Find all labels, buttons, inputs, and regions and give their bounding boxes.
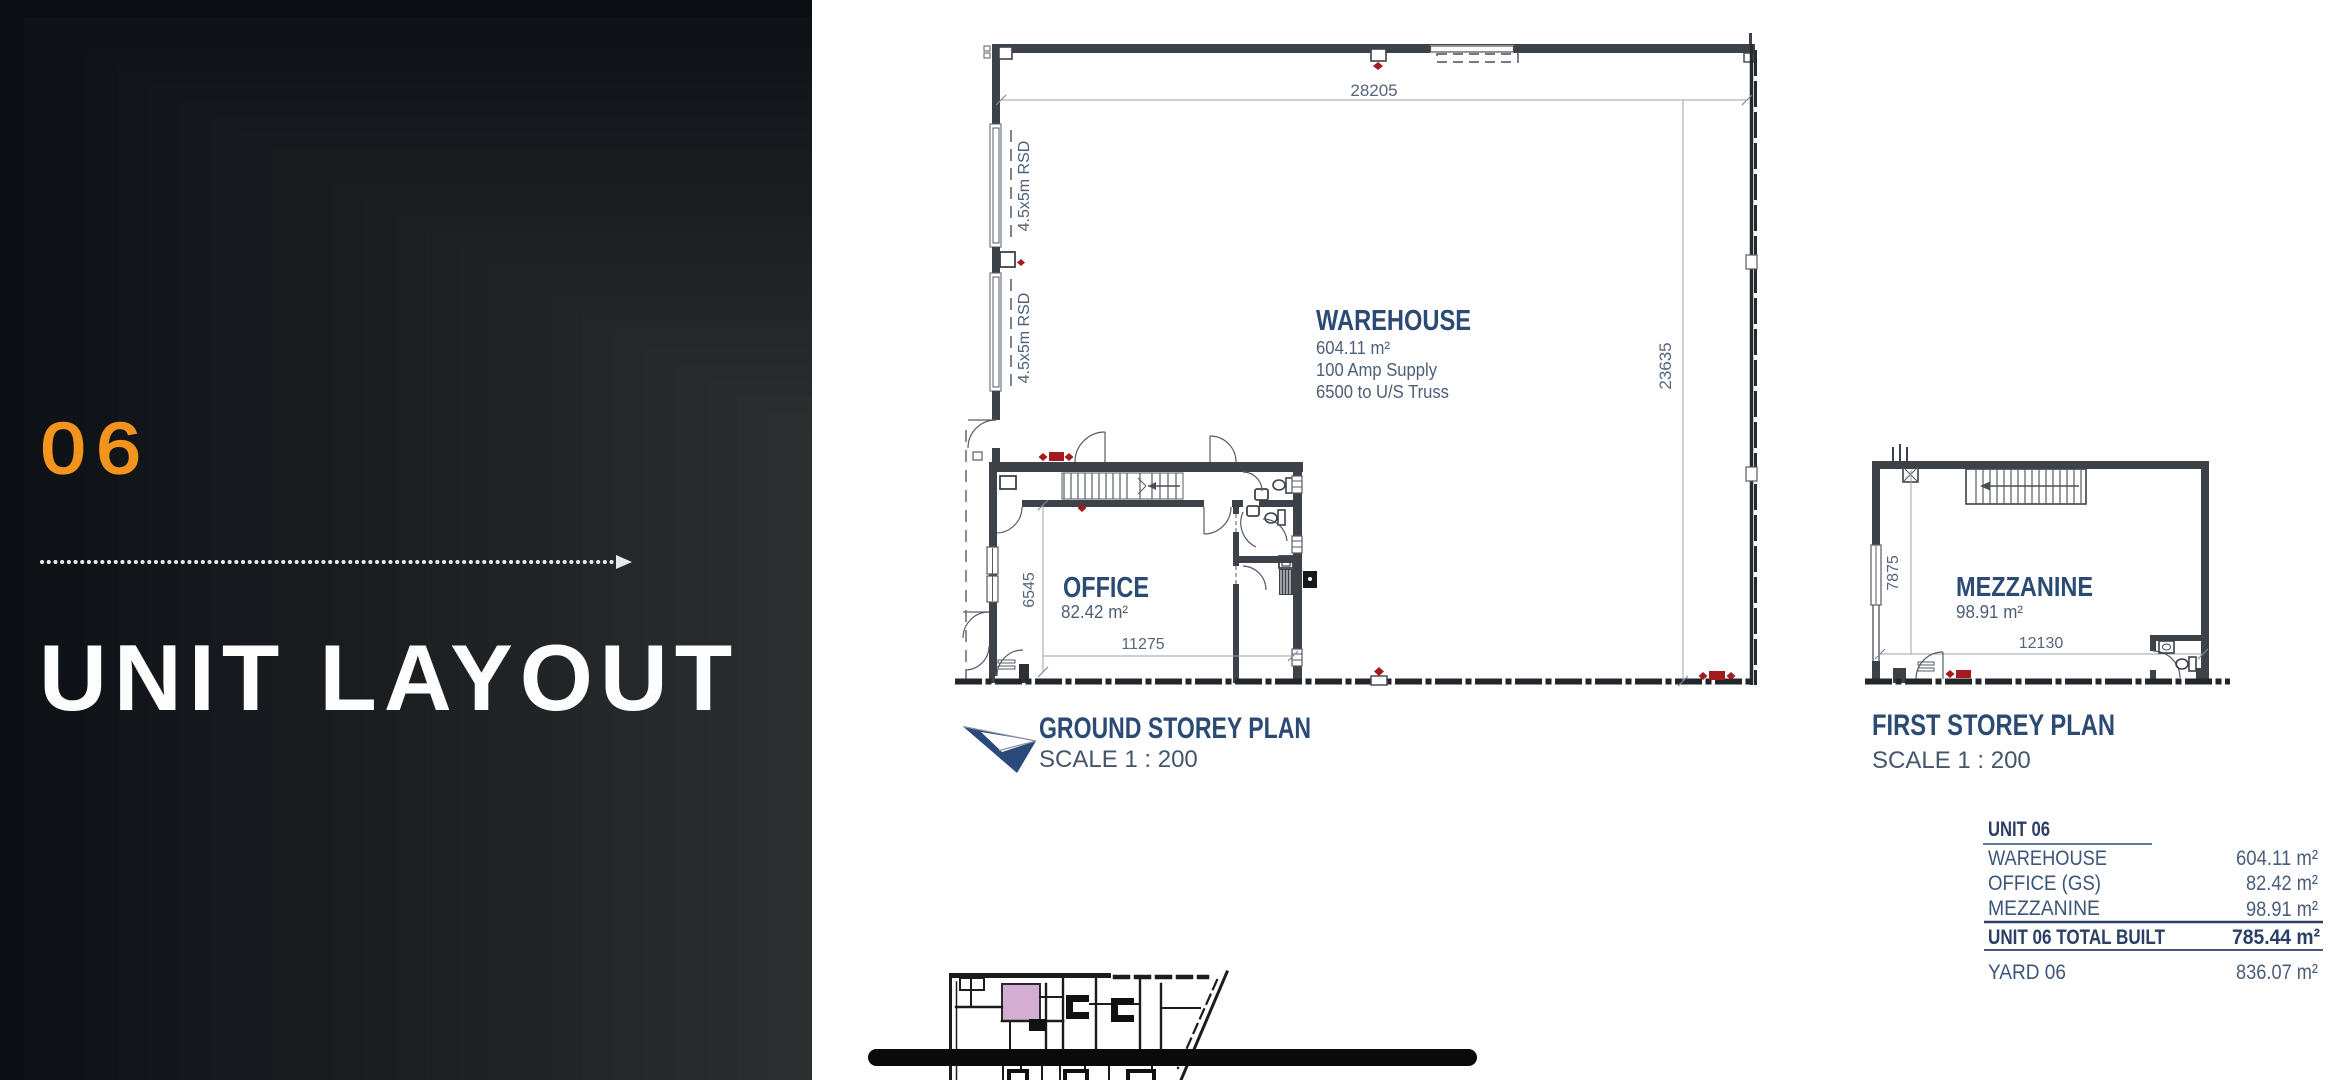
svg-text:82.42 m²: 82.42 m² xyxy=(2246,871,2318,895)
svg-text:OFFICE (GS): OFFICE (GS) xyxy=(1988,871,2101,895)
svg-text:836.07 m²: 836.07 m² xyxy=(2236,960,2318,984)
svg-text:WAREHOUSE: WAREHOUSE xyxy=(1316,305,1471,337)
svg-text:82.42 m²: 82.42 m² xyxy=(1061,602,1128,622)
svg-text:12130: 12130 xyxy=(2019,635,2064,652)
svg-text:6545: 6545 xyxy=(1021,572,1038,608)
svg-text:98.91 m²: 98.91 m² xyxy=(1956,602,2023,622)
svg-text:6500 to U/S Truss: 6500 to U/S Truss xyxy=(1316,382,1449,402)
svg-text:604.11 m²: 604.11 m² xyxy=(2236,846,2318,870)
svg-text:UNIT 06 TOTAL BUILT: UNIT 06 TOTAL BUILT xyxy=(1988,925,2165,949)
svg-text:4.5x5m RSD: 4.5x5m RSD xyxy=(1016,141,1033,232)
svg-text:28205: 28205 xyxy=(1350,81,1397,100)
svg-text:4.5x5m RSD: 4.5x5m RSD xyxy=(1016,293,1033,384)
svg-text:SCALE 1 : 200: SCALE 1 : 200 xyxy=(1872,747,2031,774)
svg-text:98.91 m²: 98.91 m² xyxy=(2246,897,2318,921)
svg-text:604.11 m²: 604.11 m² xyxy=(1316,338,1390,358)
svg-text:UNIT 06: UNIT 06 xyxy=(1988,818,2050,841)
svg-text:100 Amp Supply: 100 Amp Supply xyxy=(1316,360,1437,380)
svg-text:11275: 11275 xyxy=(1121,636,1164,653)
svg-text:785.44 m²: 785.44 m² xyxy=(2232,925,2320,949)
svg-text:YARD 06: YARD 06 xyxy=(1988,960,2066,984)
svg-text:7875: 7875 xyxy=(1885,555,1902,591)
svg-text:WAREHOUSE: WAREHOUSE xyxy=(1988,846,2107,870)
svg-text:FIRST STOREY PLAN: FIRST STOREY PLAN xyxy=(1872,709,2115,742)
svg-text:GROUND STOREY PLAN: GROUND STOREY PLAN xyxy=(1039,712,1311,745)
svg-text:23635: 23635 xyxy=(1656,342,1675,389)
svg-text:MEZZANINE: MEZZANINE xyxy=(1956,571,2093,602)
svg-text:MEZZANINE: MEZZANINE xyxy=(1988,896,2100,920)
svg-text:OFFICE: OFFICE xyxy=(1063,572,1149,604)
svg-text:SCALE 1 : 200: SCALE 1 : 200 xyxy=(1039,746,1198,773)
